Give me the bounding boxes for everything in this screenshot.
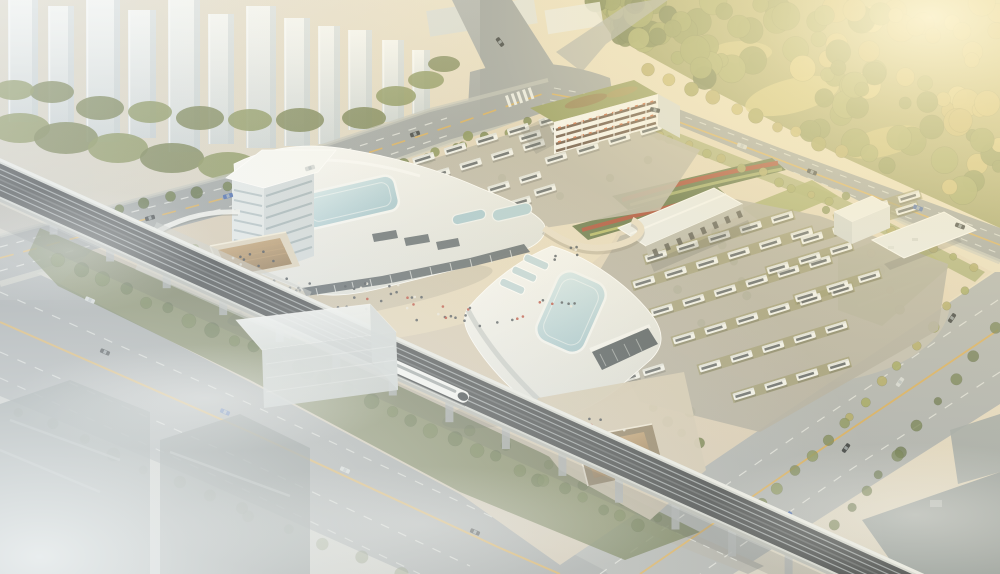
rendering-canvas: Aerial architectural rendering of an int… <box>0 0 1000 574</box>
atmosphere <box>0 0 1000 574</box>
warm-tint <box>0 0 1000 574</box>
aerial-rendering <box>0 0 1000 574</box>
